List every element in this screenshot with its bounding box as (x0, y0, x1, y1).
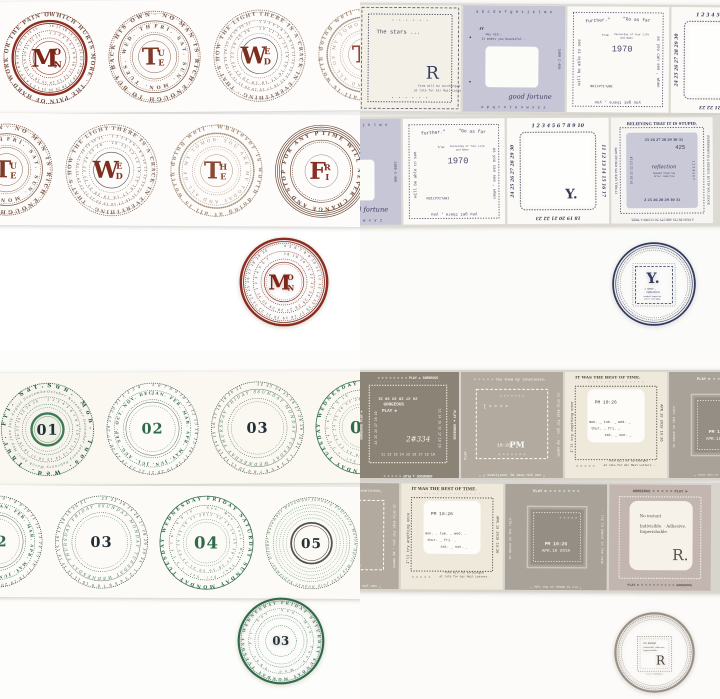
stamp-text: thur. _ fri. _ (427, 538, 457, 543)
stamp-text: PLAY ► > > > > > > > (533, 489, 580, 494)
stamp-text: PLAY ► > > > > > > > (697, 377, 720, 382)
stamp-text: IT WAS THE BEST OF TIME. (575, 375, 641, 380)
tape-strip: > > > > > > > > PLAY ► GORGEOUS· · · · ·… (360, 370, 720, 480)
stamp-text: 2 25 26 28 29 30 31 (644, 198, 680, 202)
stamp-text: " try to dance in the rain " (694, 473, 720, 477)
stamp-text: o p q r s t u v w x y z (481, 106, 546, 110)
stamp-no-instant-square: GORGEOUS > > > > > PLAY ►No instantIndiv… (609, 484, 712, 591)
quadrant-weekday-stamps-red: WHICH HURTS MORE · THE PAIN OF HARD WORK… (0, 0, 360, 350)
stamp-thu-circle: Whatever is worth doing at all is worth … (315, 5, 360, 103)
stamp-text: good fortune (360, 206, 388, 214)
stamp-text: o p q r s t u v w x y z (360, 219, 383, 223)
stamp-text: > > > > > You know my loneliness, (360, 488, 382, 493)
stamp-text: Yesterday of Your Life (450, 144, 485, 148)
stamp-text: E (116, 160, 122, 170)
stamp-1970-square: further.""Go as farwill be able to seeas… (567, 6, 670, 113)
stamp-text: IMPLICATION (426, 195, 449, 199)
stamp-text: After tomorrow (654, 175, 675, 178)
stamp-text: No instant (640, 513, 662, 518)
stamp-the-stars-square: ▸ · ▸ · ▸ · ▸ · ▸ · ▸The stars ...Rform … (360, 5, 461, 112)
stamp-text: a b c d e f g h i j k l m n (476, 10, 552, 16)
tape-stamp-cell: > > > > > > > > PLAY ► GORGEOUS· · · · ·… (360, 372, 459, 478)
stamp-mon-sticker: 4 5 6 7 8 9 10 11 12 13 14 15 16 17 18 1… (238, 236, 330, 328)
stamp-text: a b c d e f g h i j k l m n (360, 123, 388, 128)
stamp-text: 13 14 15 16 17 18 19 (438, 409, 442, 448)
stamp-text: sat. _ sun. _ (440, 546, 468, 550)
stamp-believing-425-square: BELIEVING THAT IT IS STUPID.EVERYBODY IS… (611, 117, 714, 224)
stamp-text: APR.10 2019 10:26 (658, 404, 662, 441)
tape-stamp-cell: THERE IS A CRACK IN EVERYTHING · THAT'S … (63, 121, 161, 219)
tape-stamp-cell: IT WAS THE BEST OF TIME.· · · · · · · · … (401, 483, 504, 590)
tape-strip: ▸ · ▸ · ▸ · ▸ · ▸ · ▸The stars ...Rform … (360, 3, 720, 116)
stamp-text: It makes you beautiful . (482, 37, 526, 41)
stamp-text: E (264, 46, 270, 56)
quadrant-letter-squares-navy: ▸ · ▸ · ▸ · ▸ · ▸ · ▸The stars ...Rform … (360, 0, 720, 350)
tape-stamp-cell: THERE IS A CRACK IN EVERYTHING · THAT'S … (210, 6, 308, 104)
stamp-text: PLAY ► > > > > > > > > > GORGEOUS (628, 583, 692, 587)
stamp-text: ▸ · ▸ · ▸ · ▸ · ▸ · ▸ (392, 19, 428, 22)
stamp-text: [ > > > > (483, 404, 508, 410)
stamp-text: 04 (350, 417, 360, 436)
stamp-text: Y. (564, 187, 577, 202)
stamp-text: APR.10 2019 (542, 549, 571, 554)
stamp-thu-circle: Whatever is worth doing at all is worth … (168, 121, 266, 219)
stamp-text: Y. (646, 271, 660, 287)
stamp-text: sat. _ sun. _ (605, 434, 633, 438)
stamp-text: APR.10 2019 10:26 (494, 516, 498, 553)
stamp-play-pm-square: PLAY ► > > > > > > >to dance in the rain… (505, 484, 608, 591)
stamp-text: PM 10:26 (545, 541, 568, 547)
stamp-text: IT WAS THE BEST OF TIME. (411, 486, 477, 491)
stamp-best-of-time-square: IT WAS THE BEST OF TIME.· · · · · · · · … (401, 483, 504, 590)
quadrant-ticket-squares-gray: > > > > > > > > PLAY ► GORGEOUS· · · · ·… (360, 350, 720, 699)
stamp-text: as you can see , when (655, 36, 660, 88)
tape-stamp-cell: > > > > > You know my loneliness,is only… (461, 372, 563, 478)
stamp-text: Hey kid , (486, 32, 503, 36)
stamp-text: U (158, 47, 165, 57)
stamp-date-03-circle: 22 23 24 25 26 27 28 29 30 31 · 1 2 3 4 … (209, 379, 307, 477)
stamp-text: 1988 C-400 (392, 161, 396, 182)
tape-strip: WHICH HURTS MORE · THE PAIN OF HARD WORK… (0, 113, 360, 227)
stamp-text: good fortune (508, 93, 551, 101)
tape-stamp-cell: Sun. Mon. Tues. Wed. Thur. Fri. Sat.Octo… (0, 380, 96, 478)
stamp-date-01-circle: Sun. Mon. Tues. Wed. Thur. Fri. Sat.Octo… (0, 380, 96, 478)
stamp-loneliness-square: > > > > > You know my loneliness,is only… (461, 372, 563, 478)
stamp-text: PLAY ► GORGEOUS (646, 673, 664, 676)
stamp-text: D (116, 170, 123, 180)
stamp-text: 01 (36, 421, 58, 438)
stamp-text: 19 20 21 22 23 24 (629, 156, 633, 184)
stamp-text: thur. _ fri. _ (591, 427, 621, 432)
stamp-fri-circle: TIME WILL NEVER CHANGE AND STOP FOR ANY … (273, 122, 360, 220)
tape-stamp-cell: > > > > > You know my loneliness,is only… (360, 483, 399, 590)
stamp-text: 26 27 28 29 30 31 (377, 395, 417, 399)
stamp-text: R (426, 64, 440, 84)
stamp-text: IMPLICATION (590, 83, 613, 87)
stamp-text: < < < < < < < (360, 564, 361, 569)
stamp-text: I'll try anything once (570, 401, 575, 453)
stamp-text: to dance in the rain · (672, 402, 677, 448)
stamp-text: I'll try anything once (406, 512, 411, 564)
stamp-number-border-y-square: 1 2 3 4 5 6 7 8 9 1011 12 13 14 15 16 17… (671, 7, 720, 114)
stamp-text: reflection (646, 290, 660, 294)
tape-stamp-cell: GORGEOUS > > > > > PLAY ►No instantIndiv… (609, 484, 712, 591)
stamp-text: reflection (652, 164, 677, 170)
stamp-text: 03 (90, 533, 112, 550)
stamp-text: 1 2 3 4 5 6 7 8 9 10 (696, 12, 720, 18)
tape-strip: > > > > > > > > PLAY ► GORGEOUS· · · · ·… (360, 481, 720, 593)
stamp-text: 24 25 26 27 28 29 30 (510, 144, 516, 199)
stamp-text: form will be surcharged (444, 570, 484, 574)
stamp-tue-circle: · NO MAN IS RICH ENOUGH TO BUY BACK HIS … (0, 120, 55, 218)
quadrant-date-stamps-green: Sun. Mon. Tues. Wed. Thur. Fri. Sat.Octo… (0, 350, 360, 699)
stamp-text: > > > > > (576, 464, 595, 469)
stamp-text: 02 (141, 420, 163, 437)
tape-stamp-cell: Whatever is worth doing at all is worth … (168, 121, 266, 219)
stamp-text: 2#334 (405, 434, 431, 443)
stamp-text: R (324, 162, 331, 172)
tape-stamp-cell: 1 2 3 4 5 6 7 8 9 1011 12 13 14 15 16 17… (507, 118, 610, 225)
stamp-text: form will be surcharged (609, 459, 649, 463)
tape-stamp-cell: · NO MAN IS RICH ENOUGH TO BUY BACK HIS … (105, 7, 203, 105)
stamp-date-03-circle: 22 23 24 25 26 27 28 29 30 31 · 1 2 3 4 … (53, 493, 151, 591)
stamp-wed-circle: THERE IS A CRACK IN EVERYTHING · THAT'S … (63, 121, 161, 219)
stamp-text: from (438, 145, 445, 149)
tape-stamp-cell: PLAY ► > > > > > > >to dance in the rain… (669, 372, 720, 478)
stamp-text: at rate for Air Mail Letters . (604, 463, 655, 467)
stamp-text: A FISH BY ITS ABILITY TO CLIMB A TREE, (630, 218, 694, 222)
stamp-text: It makes you beautiful . (360, 150, 361, 154)
tape-stamp-cell: further.""Go as farwill be able to seeas… (567, 6, 670, 113)
round-sticker-y-sticker: Y.i swear ,reflectionNeeded Tomorrowafte… (610, 240, 698, 328)
stamp-text: 1970 (448, 156, 469, 166)
stamp-text: PM 10:26 (709, 429, 720, 435)
stamp-1970-square: further.""Go as farwill be able to seeas… (403, 118, 506, 225)
stamp-date-04-circle: FRIDAY SATURDAY SUNDAY MONDAY TUESDAY WE… (314, 378, 360, 476)
stamp-number-border-y-square: 1 2 3 4 5 6 7 8 9 1011 12 13 14 15 16 17… (507, 118, 610, 225)
stamp-text: 25 26 27 28 29 30 31 (645, 138, 683, 142)
round-sticker-r-sticker: No instantIndivisible, Adhesive,Imperish… (612, 610, 697, 695)
stamp-text: 04 (194, 533, 219, 552)
stamp-text: is only kept for you , my sweet (391, 504, 396, 568)
stamp-text: from (602, 33, 609, 37)
stamp-text: Imperishable. (640, 529, 668, 534)
stamp-text: will be able to see (577, 39, 582, 86)
stamp-text: E (158, 57, 164, 67)
stamp-text: IT WILL LIVE ITS WHOLE LIFE (614, 147, 618, 193)
stamp-text: E (220, 171, 226, 181)
stamp-text: No instant (643, 642, 656, 645)
stamp-text: GORGEOUS (383, 403, 404, 408)
tape-stamp-cell: 5 6 7 8 9 10 11 12 13 14 15 16 17 18 19 … (0, 492, 45, 590)
tape-stamp-cell: a b c d e f g h i j k l m n“Hey kid ,It … (360, 119, 401, 226)
stamp-text: and When (620, 36, 633, 40)
tape-stamp-cell: IT WAS THE BEST OF TIME.· · · · · · · · … (565, 372, 667, 478)
tape-stamp-cell: BELIEVING THAT IT IS STUPID.EVERYBODY IS… (611, 117, 714, 224)
stamp-text: 18 19 20 21 22 23 (699, 104, 720, 110)
stamp-text: R (656, 653, 666, 667)
stamp-text: 1 2 3 4 5 6 7 8 9 10 (531, 123, 584, 129)
stamp-text: ▸ · ▸ · ▸ · ▸ · ▸ · ▸ (392, 96, 428, 99)
stamp-text: < < < < < < < (499, 453, 526, 458)
stamp-text: O (287, 273, 294, 282)
washi-tape-product-collage: WHICH HURTS MORE · THE PAIN OF HARD WORK… (0, 0, 720, 699)
stamp-mon-circle: WHICH HURTS MORE · THE PAIN OF HARD WORK… (1, 8, 99, 106)
stamp-text: H (219, 161, 227, 171)
stamp-text: U (10, 160, 17, 170)
stamp-good-fortune-square: a b c d e f g h i j k l m n“Hey kid ,It … (463, 5, 566, 112)
stamp-text: GORGEOUS ◄ PLAY < < < < < (384, 474, 433, 478)
stamp-text: after everyday (644, 297, 661, 300)
tape-stamp-cell: a b c d e f g h i j k l m n“Hey kid ,It … (463, 5, 566, 112)
stamp-text: > > > > > (560, 516, 578, 520)
stamp-text: you get there , you (594, 99, 641, 104)
tape-stamp-cell: ▸ · ▸ · ▸ · ▸ · ▸ · ▸The stars ...Rform … (360, 5, 461, 112)
tape-stamp-cell: PLAY ► > > > > > > >to dance in the rain… (505, 484, 608, 591)
stamp-text: Imperishable. (643, 650, 658, 652)
stamp-text: E (10, 170, 16, 180)
tape-stamp-cell: 5 6 7 8 9 10 11 12 13 14 15 16 17 18 19 … (104, 379, 202, 477)
stamp-text: mon. _ tue. _ wed. _ (425, 531, 467, 536)
stamp-text: as you can see , when (491, 148, 496, 200)
stamp-text: APR.10 2019 (706, 437, 720, 442)
stamp-text: 1970 (612, 44, 633, 54)
tape-stamp-cell: 22 23 24 25 26 27 28 29 30 31 · 1 2 3 4 … (209, 379, 307, 477)
stamp-date-02-circle: 5 6 7 8 9 10 11 12 13 14 15 16 17 18 19 … (104, 379, 202, 477)
stamp-text: to dance in the rain · (508, 514, 513, 560)
stamp-r-sticker: No instantIndivisible, Adhesive,Imperish… (612, 610, 697, 695)
tape-strip: Sun. Mon. Tues. Wed. Thur. Fri. Sat.Octo… (0, 371, 360, 486)
stamp-text: N (288, 283, 295, 292)
stamp-date-02-circle: 5 6 7 8 9 10 11 12 13 14 15 16 17 18 19 … (0, 492, 45, 590)
tape-stamp-cell: 1 2 3 4 5 6 7 8 9 1011 12 13 14 15 16 17… (671, 7, 720, 114)
tape-stamp-cell: Whatever is worth doing at all is worth … (315, 5, 360, 103)
stamp-text: 425 (675, 144, 685, 151)
stamp-text: 1988 C-400 (556, 49, 560, 70)
stamp-text: PLAY · (465, 447, 469, 459)
stamp-text: 11 12 13 14 15 16 17 18 19 (381, 454, 435, 458)
tape-stamp-cell: FRIDAY SATURDAY SUNDAY MONDAY TUESDAY WE… (314, 378, 360, 476)
stamp-play-pm-square: PLAY ► > > > > > > >to dance in the rain… (669, 372, 720, 478)
stamp-best-of-time-square: IT WAS THE BEST OF TIME.· · · · · · · · … (565, 372, 667, 478)
stamp-good-fortune-square: a b c d e f g h i j k l m n“Hey kid ,It … (360, 119, 401, 226)
tape-stamp-cell: TIME WILL NEVER CHANGE AND STOP FOR ANY … (273, 122, 360, 220)
stamp-text: PM (510, 439, 525, 449)
stamp-text: » » » » » » » (500, 393, 524, 397)
stamp-text: 24 25 26 27 28 29 30 (673, 33, 679, 88)
stamp-text: 03 (246, 419, 268, 436)
stamp-y-sticker: Y.i swear ,reflectionNeeded Tomorrowafte… (610, 240, 698, 328)
stamp-date-05-circle: January February March April May June Ju… (263, 494, 360, 592)
stamp-loneliness-square: > > > > > You know my loneliness,is only… (360, 483, 399, 590)
stamp-text: Indivisible. · Adhesive. (640, 523, 687, 528)
stamp-text: · try to dance in the rain (599, 510, 604, 564)
stamp-text: N (54, 60, 62, 70)
stamp-text: " can you hear my loneliness ? " (360, 583, 381, 588)
stamp-text: PM 10:26 (595, 400, 617, 406)
stamp-tue-circle: · NO MAN IS RICH ENOUGH TO BUY BACK HIS … (105, 7, 203, 105)
stamp-text: will be able to see (413, 151, 418, 198)
stamp-text: and When (456, 147, 469, 151)
stamp-text: > > > > > You know my loneliness, (474, 378, 546, 383)
tape-stamp-cell: January February March April May June Ju… (263, 494, 360, 592)
round-sticker-date-03-sticker: FRIDAY SATURDAY SUNDAY MONDAY TUESDAY WE… (236, 596, 326, 686)
stamp-text: 02 (0, 533, 8, 550)
tape-strip: ▸ · ▸ · ▸ · ▸ · ▸ · ▸The stars ...Rform … (360, 115, 720, 227)
stamp-text: R. (672, 546, 688, 564)
stamp-text: 05 (301, 535, 322, 551)
tape-strip: Sun. Mon. Tues. Wed. Thur. Fri. Sat.Octo… (0, 485, 360, 599)
tape-stamp-cell: further.""Go as farwill be able to seeas… (403, 118, 506, 225)
stamp-text: 18 19 20 21 22 23 (536, 215, 581, 221)
stamp-text: I (325, 171, 329, 181)
tape-stamp-cell: FRIDAY SATURDAY SUNDAY MONDAY TUESDAY WE… (158, 493, 256, 591)
stamp-text: PLAY ► (382, 409, 398, 414)
stamp-text: PLAY ► GORGEOUS (452, 410, 456, 439)
stamp-text: O (53, 47, 61, 57)
tape-stamp-cell: 22 23 24 25 26 27 28 29 30 31 · 1 2 3 4 … (53, 493, 151, 591)
stamp-text: · · · · · · · · · · · · · · (588, 381, 644, 385)
stamp-text: at rate for Air Mail Letters . (439, 574, 491, 578)
stamp-wed-circle: THERE IS A CRACK IN EVERYTHING · THAT'S … (210, 6, 308, 104)
stamp-text: · · · · · · · · · · · · · · (424, 493, 480, 497)
stamp-text: 11 12 13 14 15 16 17 (600, 144, 606, 198)
stamp-text: 24 25 26 27 28 29 (374, 411, 378, 444)
stamp-text: 1 2 3 4 5 6 7 (692, 160, 696, 179)
stamp-gorgeous-play-square: > > > > > > > > PLAY ► GORGEOUS· · · · ·… (360, 372, 459, 478)
tape-stamp-cell: WHICH HURTS MORE · THE PAIN OF HARD WORK… (1, 8, 99, 106)
stamp-text: EVERYBODY IS A GENIUS. BUT IF YOU JUDGE (706, 135, 710, 205)
stamp-text: PM (360, 550, 361, 560)
tape-stamp-cell: · NO MAN IS RICH ENOUGH TO BUY BACK HIS … (0, 120, 55, 218)
stamp-text: at rate for Air Mail Letters . (414, 88, 462, 92)
stamp-text: GORGEOUS PLAY ► (360, 410, 364, 439)
stamp-text: The stars ... (377, 28, 421, 35)
stamp-date-04-circle: FRIDAY SATURDAY SUNDAY MONDAY TUESDAY WE… (158, 493, 256, 591)
round-sticker-mon-sticker: 4 5 6 7 8 9 10 11 12 13 14 15 16 17 18 1… (238, 236, 330, 328)
stamp-text: mon. _ tue. _ wed. _ (589, 420, 631, 425)
tape-strip: WHICH HURTS MORE · THE PAIN OF HARD WORK… (0, 0, 360, 114)
stamp-text: " try to dance in the rain " (530, 585, 581, 589)
stamp-date-03-sticker: FRIDAY SATURDAY SUNDAY MONDAY TUESDAY WE… (236, 596, 326, 686)
stamp-text: > > > > > (412, 575, 431, 580)
stamp-text: 03 (272, 634, 289, 648)
stamp-text: PM 10:26 (431, 511, 453, 517)
stamp-text: D (264, 56, 271, 66)
stamp-text: Indivisible, Adhesive, (643, 647, 665, 649)
stamp-text: GORGEOUS > > > > > PLAY ► (633, 489, 689, 494)
stamp-text: BELIEVING THAT IT IS STUPID. (627, 121, 698, 126)
stamp-text: · · · · · · · · · · · · · · · · · · (376, 380, 440, 384)
stamp-text: you get there , you (430, 211, 477, 216)
stamp-text: T (352, 41, 360, 68)
